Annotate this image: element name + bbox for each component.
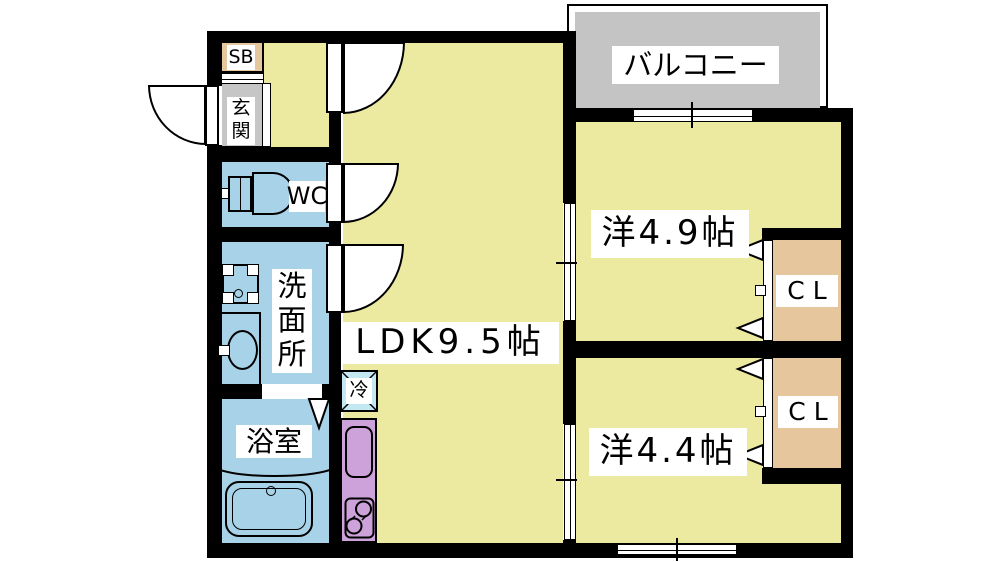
closet-1-door-arrow-bottom (735, 316, 765, 340)
toilet-tank-icon (228, 176, 252, 212)
wall-center-lower (563, 540, 576, 546)
washing-machine-icon (222, 264, 259, 304)
washroom-label: 洗面所 (272, 269, 312, 373)
closet-1-label: CL (776, 275, 838, 307)
toilet-label: WC (289, 181, 325, 212)
bottom-window-tick (676, 538, 678, 561)
refrigerator-label: 冷 (346, 378, 372, 404)
wall-ldk-left-2 (329, 223, 341, 244)
wall-wc-washroom (207, 227, 341, 242)
hallway-area (263, 42, 329, 147)
floor-plan: バルコニー SB 玄関 CL CL (0, 0, 1000, 562)
hall-door-leaf (326, 42, 343, 113)
wall-center-upper (563, 31, 576, 203)
wall-rooms-divider (563, 341, 853, 358)
kitchen-sink-icon (345, 426, 373, 478)
closet-1-handle (755, 285, 766, 296)
wall-center-middle (563, 321, 576, 424)
wall-closet1-top (762, 228, 841, 240)
entrance-step (262, 83, 271, 147)
shoe-box-label: SB (227, 45, 255, 70)
toilet-door-leaf (326, 163, 343, 223)
closet-2-handle (755, 406, 766, 417)
vanity-counter-line-h (222, 312, 261, 314)
wall-ldk-left-1 (329, 113, 341, 163)
sliding-door-room1-tick (556, 262, 577, 264)
washbasin-icon (227, 330, 258, 370)
toilet-handle-icon (221, 188, 229, 199)
wall-bottom (207, 543, 853, 558)
closet-2-label: CL (778, 396, 838, 428)
wall-right (841, 108, 853, 558)
washbasin-faucet-icon (218, 345, 230, 356)
closet-2-door-arrow-top (735, 357, 765, 381)
sliding-door-room2 (564, 424, 576, 540)
vanity-counter-line-v (259, 312, 261, 384)
wall-closet2-bottom (762, 468, 853, 484)
balcony-window-tick (691, 102, 693, 128)
wall-hall-wc (207, 147, 341, 162)
entry-door-leaf (205, 85, 219, 146)
balcony-label: バルコニー (612, 46, 779, 84)
bathtub-drain-icon (266, 486, 276, 496)
washroom-door-leaf (326, 244, 343, 313)
bathroom-label: 浴室 (236, 425, 312, 458)
bath-deck-curve (220, 464, 330, 482)
stove-icon (343, 496, 376, 540)
entry-door-swing (148, 85, 206, 145)
entrance-label: 玄関 (227, 97, 255, 145)
western-room-2-label: 洋4.4帖 (589, 428, 747, 476)
western-room-1-label: 洋4.9帖 (591, 210, 749, 258)
sliding-door-room2-tick (556, 479, 577, 481)
wall-left-upper (207, 31, 222, 86)
ldk-label: LDK9.5帖 (342, 322, 559, 364)
balcony-window (633, 109, 753, 122)
